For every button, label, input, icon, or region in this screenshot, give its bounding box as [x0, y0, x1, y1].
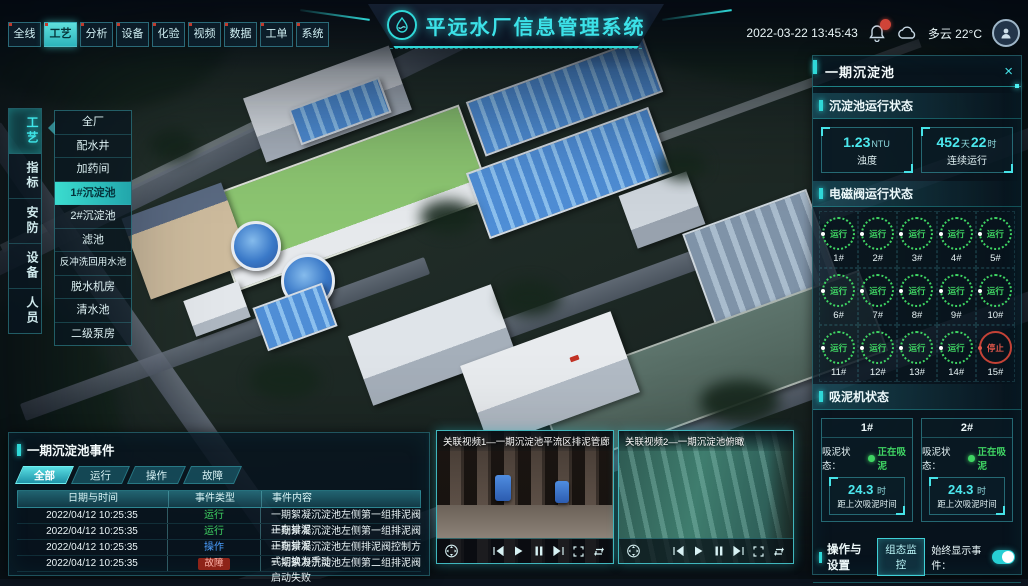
mud-time-label: 距上次吸泥时间: [837, 498, 897, 510]
green-status-dot: [868, 455, 874, 462]
valve-id: 12#: [870, 367, 886, 378]
valve-cell[interactable]: 运行14#: [937, 325, 976, 382]
video-2-title: 关联视频2—一期沉淀池俯瞰: [619, 431, 793, 451]
app-title-plate: 平远水厂信息管理系统: [368, 4, 664, 48]
col-header-time: 日期与时间: [18, 491, 168, 507]
section-run-status-header: 沉淀池运行状态: [813, 93, 1021, 119]
menu-item-tuoshuijifang[interactable]: 脱水机房: [55, 276, 131, 300]
mud-status-label: 吸泥状态：: [922, 444, 965, 472]
sidebar-tab-renyuan[interactable]: 人员: [9, 289, 41, 333]
mud-machine-card-1: 1# 吸泥状态： 正在吸泥 24.3 时 距上次吸泥时间: [821, 418, 913, 522]
green-status-dot: [968, 455, 974, 462]
joystick-pan-icon[interactable]: [626, 544, 641, 559]
event-row[interactable]: 2022/04/12 10:25:35 运行 一期絮凝沉淀池左侧第一组排泥阀正在…: [17, 508, 421, 524]
valve-id: 6#: [833, 310, 844, 321]
nav-tab-xitong[interactable]: 系统: [296, 22, 329, 47]
section-accent-bar: [819, 188, 823, 199]
valve-status-grid: 运行1# 运行2# 运行3# 运行4# 运行5# 运行6# 运行7# 运行8# …: [813, 207, 1021, 384]
valve-id: 13#: [909, 367, 925, 378]
event-row[interactable]: 2022/04/12 10:25:35 故障 一期絮凝沉淀池左侧第二组排泥阀启动…: [17, 556, 421, 572]
mud-machines: 1# 吸泥状态： 正在吸泥 24.3 时 距上次吸泥时间 2# 吸泥状态： 正在…: [813, 410, 1021, 530]
nav-tab-fenxi[interactable]: 分析: [80, 22, 113, 47]
event-filter-tabs: 全部 运行 操作 故障: [9, 463, 429, 490]
valve-status-indicator: 运行: [979, 274, 1012, 307]
section-title: 沉淀池运行状态: [829, 97, 913, 114]
turbidity-value: 1.23NTU: [843, 134, 891, 150]
close-icon[interactable]: ×: [1004, 65, 1013, 79]
valve-cell[interactable]: 运行7#: [858, 268, 897, 325]
valve-cell[interactable]: 停止15#: [976, 325, 1015, 382]
user-avatar-icon[interactable]: [992, 19, 1020, 47]
uptime-stat-card: 452天22时 连续运行: [921, 127, 1013, 173]
uptime-label: 连续运行: [947, 152, 987, 167]
nav-tab-shuju[interactable]: 数据: [224, 22, 257, 47]
loop-icon[interactable]: [771, 544, 786, 559]
valve-status-indicator-stopped: 停止: [979, 331, 1012, 364]
mud-machine-id: 1#: [822, 419, 912, 438]
sidebar-category-tabs: 工艺 指标 安防 设备 人员: [8, 108, 42, 334]
video-1-title: 关联视频1—一期沉淀池平流区排泥管廊: [437, 431, 613, 451]
scada-monitor-button[interactable]: 组态监控: [877, 538, 926, 576]
fault-badge: 故障: [198, 558, 229, 570]
valve-id: 15#: [987, 367, 1003, 378]
menu-item-quanchang[interactable]: 全厂: [55, 111, 131, 135]
notification-badge: [880, 19, 891, 30]
valve-cell[interactable]: 运行4#: [937, 211, 976, 268]
valve-id: 1#: [833, 253, 844, 264]
joystick-pan-icon[interactable]: [444, 544, 459, 559]
section-title: 操作与设置: [827, 541, 871, 573]
valve-id: 8#: [912, 310, 923, 321]
mud-machine-status: 吸泥状态： 正在吸泥: [922, 438, 1012, 477]
nav-tab-huayan[interactable]: 化验: [152, 22, 185, 47]
bell-icon[interactable]: [868, 24, 886, 42]
section-mud-header: 吸泥机状态: [813, 384, 1021, 410]
section-accent-bar: [819, 552, 822, 563]
valve-id: 9#: [951, 310, 962, 321]
event-time: 2022/04/12 10:25:35: [17, 524, 167, 539]
skip-forward-icon[interactable]: [551, 544, 566, 559]
event-type: 运行: [167, 524, 261, 539]
menu-item-peishuijing[interactable]: 配水井: [55, 135, 131, 159]
valve-cell[interactable]: 运行8#: [897, 268, 936, 325]
valve-status-indicator: 运行: [940, 274, 973, 307]
title-dashed-line: [390, 48, 642, 49]
nav-tab-shebei[interactable]: 设备: [116, 22, 149, 47]
valve-status-indicator: 运行: [861, 274, 894, 307]
valve-id: 2#: [873, 253, 884, 264]
events-table: 日期与时间 事件类型 事件内容 2022/04/12 10:25:35 运行 一…: [17, 490, 421, 572]
valve-status-indicator: 运行: [900, 217, 933, 250]
valve-id: 14#: [948, 367, 964, 378]
cloud-icon: [896, 25, 918, 41]
event-tab-operate[interactable]: 操作: [131, 466, 182, 484]
valve-status-indicator: 运行: [822, 331, 855, 364]
menu-item-2-chendianchi[interactable]: 2#沉淀池: [55, 205, 131, 229]
valve-status-indicator: 运行: [900, 331, 933, 364]
video-2-controls: [619, 538, 793, 563]
valve-cell[interactable]: 运行11#: [819, 325, 858, 382]
menu-item-qingshuichi[interactable]: 清水池: [55, 299, 131, 323]
event-time: 2022/04/12 10:25:35: [17, 556, 167, 571]
valve-cell[interactable]: 运行12#: [858, 325, 897, 382]
menu-item-erjibengfang[interactable]: 二级泵房: [55, 323, 131, 346]
mud-time-value: 24.3 时: [848, 482, 886, 497]
video-1-controls: [437, 538, 613, 563]
menu-item-fanchongxi[interactable]: 反冲洗回用水池: [55, 252, 131, 276]
event-row[interactable]: 2022/04/12 10:25:35 操作 一期絮凝沉淀池左侧排泥阀控制方式切…: [17, 540, 421, 556]
valve-id: 5#: [990, 253, 1001, 264]
valve-id: 11#: [831, 367, 846, 378]
section-title: 吸泥机状态: [829, 388, 889, 405]
valve-id: 10#: [987, 310, 1003, 321]
event-tab-run[interactable]: 运行: [75, 466, 126, 484]
app-title: 平远水厂信息管理系统: [426, 11, 646, 40]
section-accent-bar: [819, 391, 823, 402]
events-panel: 一期沉淀池事件 全部 运行 操作 故障 日期与时间 事件类型 事件内容 2022…: [8, 432, 430, 576]
video-panel-1: 关联视频1—一期沉淀池平流区排泥管廊: [436, 430, 614, 564]
always-show-events-label: 始终显示事件：: [931, 542, 985, 572]
mud-time-value: 24.3 时: [948, 482, 986, 497]
turbidity-label: 浊度: [857, 152, 877, 167]
section-ops-header: 操作与设置: [819, 541, 871, 573]
valve-id: 3#: [912, 253, 923, 264]
weather-label: 多云 22°C: [928, 25, 982, 42]
event-tab-fault[interactable]: 故障: [187, 466, 238, 484]
run-status-stats: 1.23NTU 浊度 452天22时 连续运行: [813, 119, 1021, 181]
valve-id: 4#: [951, 253, 962, 264]
events-table-header: 日期与时间 事件类型 事件内容: [17, 490, 421, 508]
valve-status-indicator: 运行: [900, 274, 933, 307]
fullscreen-icon[interactable]: [751, 544, 766, 559]
play-icon[interactable]: [691, 544, 706, 559]
skip-back-icon[interactable]: [491, 544, 506, 559]
valve-status-indicator: 运行: [940, 331, 973, 364]
event-row[interactable]: 2022/04/12 10:25:35 运行 一期絮凝沉淀池左侧第一组排泥阀正在…: [17, 524, 421, 540]
sidebar-tab-zhibiao[interactable]: 指标: [9, 154, 41, 199]
blue-pump: [555, 481, 569, 503]
section-title: 电磁阀运行状态: [829, 185, 913, 202]
gallery-floor: [437, 505, 613, 539]
event-tab-all[interactable]: 全部: [19, 466, 70, 484]
valve-status-indicator: 运行: [822, 274, 855, 307]
operations-settings-row: 操作与设置 组态监控 始终显示事件：: [813, 530, 1021, 583]
valve-status-indicator: 运行: [822, 217, 855, 250]
valve-cell[interactable]: 运行6#: [819, 268, 858, 325]
event-time: 2022/04/12 10:25:35: [17, 540, 167, 555]
mud-time-card: 24.3 时 距上次吸泥时间: [929, 477, 1005, 515]
mud-machine-status: 吸泥状态： 正在吸泥: [822, 438, 912, 477]
valve-cell[interactable]: 运行10#: [976, 268, 1015, 325]
video-panel-2: 关联视频2—一期沉淀池俯瞰: [618, 430, 794, 564]
pause-icon[interactable]: [531, 544, 546, 559]
mud-machine-card-2: 2# 吸泥状态： 正在吸泥 24.3 时 距上次吸泥时间: [921, 418, 1013, 522]
loop-icon[interactable]: [591, 544, 606, 559]
valve-cell[interactable]: 运行13#: [897, 325, 936, 382]
valve-id: 7#: [873, 310, 884, 321]
mud-status-value: 正在吸泥: [978, 444, 1013, 472]
event-content: 一期絮凝沉淀池左侧第二组排泥阀启动失败: [261, 556, 421, 571]
menu-item-1-chendianchi[interactable]: 1#沉淀池: [55, 182, 131, 206]
menu-item-jiayaojian[interactable]: 加药间: [55, 158, 131, 182]
event-type: 操作: [167, 540, 261, 555]
logo-waterdrop-icon: [387, 10, 417, 40]
blue-pump: [495, 475, 511, 501]
event-content: 一期絮凝沉淀池左侧第一组排泥阀正在排泥: [261, 508, 421, 523]
valve-status-indicator: 运行: [861, 331, 894, 364]
event-type: 故障: [167, 556, 261, 571]
always-show-events-toggle[interactable]: [992, 550, 1015, 564]
header-info: 2022-03-22 13:45:43 多云 22°C: [746, 20, 1020, 46]
section-valves-header: 电磁阀运行状态: [813, 181, 1021, 207]
event-type: 运行: [167, 508, 261, 523]
pause-icon[interactable]: [711, 544, 726, 559]
col-header-type: 事件类型: [168, 491, 262, 507]
valve-cell[interactable]: 运行2#: [858, 211, 897, 268]
skip-forward-icon[interactable]: [731, 544, 746, 559]
event-content: 一期絮凝沉淀池左侧第一组排泥阀正在排泥: [261, 524, 421, 539]
nav-tab-gongdan[interactable]: 工单: [260, 22, 293, 47]
process-menu: 全厂 配水井 加药间 1#沉淀池 2#沉淀池 滤池 反冲洗回用水池 脱水机房 清…: [54, 110, 132, 346]
sidebar-tab-gongyi[interactable]: 工艺: [9, 109, 41, 154]
nav-tab-shipin[interactable]: 视频: [188, 22, 221, 47]
mud-time-label: 距上次吸泥时间: [937, 498, 997, 510]
toggle-knob: [1002, 551, 1014, 563]
valve-cell[interactable]: 运行3#: [897, 211, 936, 268]
uptime-value: 452天22时: [937, 134, 998, 150]
fullscreen-icon[interactable]: [571, 544, 586, 559]
section-accent-bar: [17, 444, 21, 456]
events-panel-header: 一期沉淀池事件: [9, 433, 429, 463]
skip-back-icon[interactable]: [671, 544, 686, 559]
valve-status-indicator: 运行: [861, 217, 894, 250]
sidebar-tab-anfang[interactable]: 安防: [9, 199, 41, 244]
valve-cell[interactable]: 运行1#: [819, 211, 858, 268]
event-time: 2022/04/12 10:25:35: [17, 508, 167, 523]
mud-machine-id: 2#: [922, 419, 1012, 438]
valve-status-indicator: 运行: [940, 217, 973, 250]
nav-tab-quanxian[interactable]: 全线: [8, 22, 41, 47]
datetime-label: 2022-03-22 13:45:43: [746, 26, 857, 40]
mud-time-card: 24.3 时 距上次吸泥时间: [829, 477, 905, 515]
col-header-content: 事件内容: [262, 491, 420, 507]
valve-status-indicator: 运行: [979, 217, 1012, 250]
play-icon[interactable]: [511, 544, 526, 559]
sedimentation-detail-panel: 一期沉淀池 × 沉淀池运行状态 1.23NTU 浊度 452天22时 连续运行 …: [812, 55, 1022, 575]
events-panel-title: 一期沉淀池事件: [27, 440, 115, 459]
mud-status-value: 正在吸泥: [878, 444, 913, 472]
turbidity-stat-card: 1.23NTU 浊度: [821, 127, 913, 173]
valve-cell[interactable]: 运行9#: [937, 268, 976, 325]
panel-header: 一期沉淀池 ×: [813, 56, 1021, 87]
sidebar-tab-shebei[interactable]: 设备: [9, 244, 41, 289]
event-content: 一期絮凝沉淀池左侧排泥阀控制方式切换为手动: [261, 540, 421, 555]
top-nav-tabs: 全线 工艺 分析 设备 化验 视频 数据 工单 系统: [8, 22, 329, 47]
menu-item-lvchi[interactable]: 滤池: [55, 229, 131, 253]
section-accent-bar: [819, 100, 823, 111]
mud-status-label: 吸泥状态：: [822, 444, 865, 472]
valve-cell[interactable]: 运行5#: [976, 211, 1015, 268]
nav-tab-gongyi[interactable]: 工艺: [44, 22, 77, 47]
panel-title: 一期沉淀池: [825, 62, 895, 81]
